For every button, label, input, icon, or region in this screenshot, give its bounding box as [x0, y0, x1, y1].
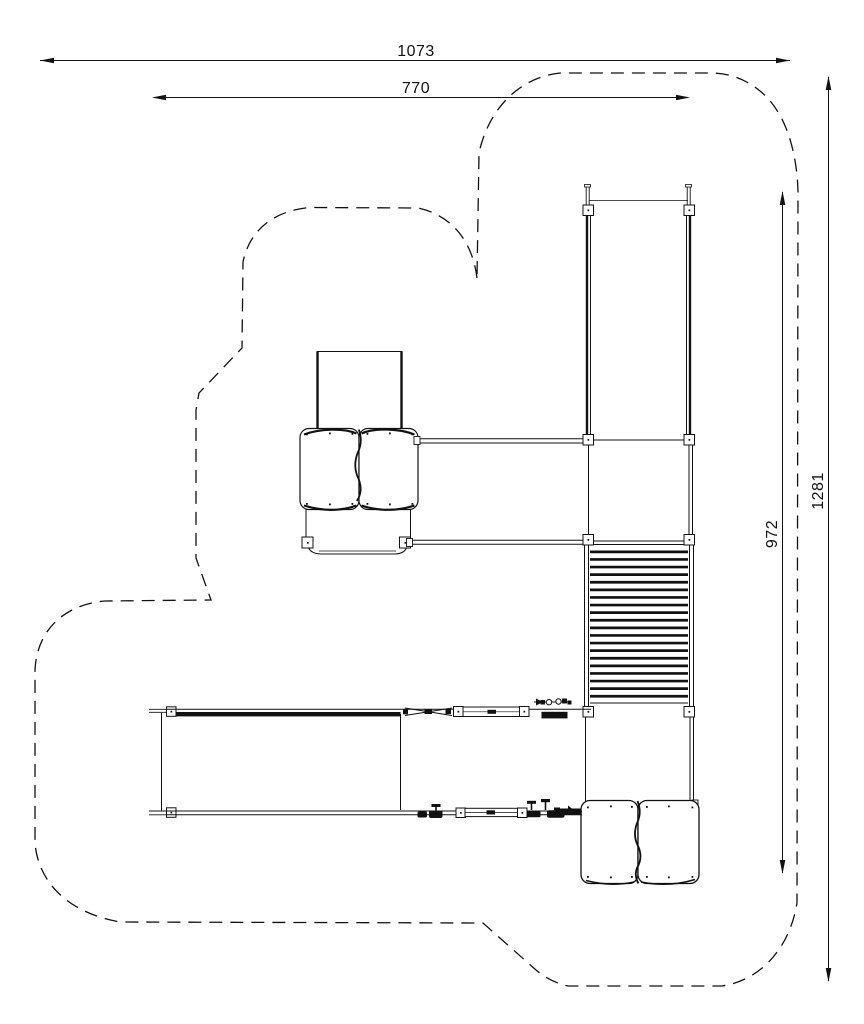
dim-label-inner-height: 972 — [764, 520, 781, 548]
slide-pin-left — [586, 186, 589, 206]
technical-drawing: 1073 770 1281 972 — [0, 0, 864, 1024]
post-dot — [405, 542, 407, 544]
post-dot — [171, 711, 173, 713]
dim-label-overall-height: 1281 — [810, 472, 827, 510]
slide-side-heavy-edge — [176, 712, 401, 716]
slide-pin-right — [687, 186, 690, 206]
slide-pin-cap-left — [585, 185, 591, 188]
dim-label-overall-width: 1073 — [397, 43, 435, 60]
post-dot — [689, 539, 691, 541]
post-dot — [171, 812, 173, 814]
rail-bracket — [407, 539, 413, 547]
post-dot — [588, 539, 590, 541]
t-pin-cap — [541, 799, 550, 802]
rod-clamp — [446, 709, 452, 714]
dim-label-inner-width: 770 — [402, 80, 430, 97]
grip-bar — [542, 712, 568, 719]
main-platform — [583, 435, 695, 546]
beam-fixing — [487, 810, 496, 814]
paper-background — [0, 0, 864, 1024]
swivel-ring — [546, 700, 551, 705]
post-dot — [460, 812, 462, 814]
rail-clamp — [418, 812, 428, 818]
beam-fixing — [488, 710, 497, 714]
platform-deck — [589, 440, 690, 541]
swivel-block — [562, 699, 567, 704]
rail-clamp — [547, 810, 565, 818]
drawing-sheet: 1073 770 1281 972 — [0, 0, 864, 1024]
post-dot — [524, 711, 526, 713]
rod-clamp — [425, 710, 433, 715]
post-dot — [458, 711, 460, 713]
slide-pin-cap-right — [686, 185, 692, 188]
climb-panel — [638, 801, 699, 884]
post-dot — [588, 711, 590, 713]
swivel-ring — [556, 699, 561, 704]
post-dot — [522, 812, 524, 814]
post-dot — [307, 542, 309, 544]
climb-panel — [300, 429, 359, 510]
post-dot — [689, 711, 691, 713]
swivel-block — [541, 700, 546, 705]
post-dot — [689, 439, 691, 441]
post-dot — [588, 439, 590, 441]
rod-clamp — [403, 709, 408, 714]
t-pin-cap — [432, 804, 441, 807]
swivel-block — [568, 701, 572, 705]
post-dot — [689, 210, 691, 212]
rail-clamp — [429, 811, 443, 819]
rail-clamp — [527, 811, 541, 818]
climb-panel — [581, 801, 638, 884]
climb-panel — [359, 429, 418, 510]
t-pin-cap — [527, 801, 536, 804]
rail-bracket — [414, 437, 420, 445]
post-dot — [588, 210, 590, 212]
